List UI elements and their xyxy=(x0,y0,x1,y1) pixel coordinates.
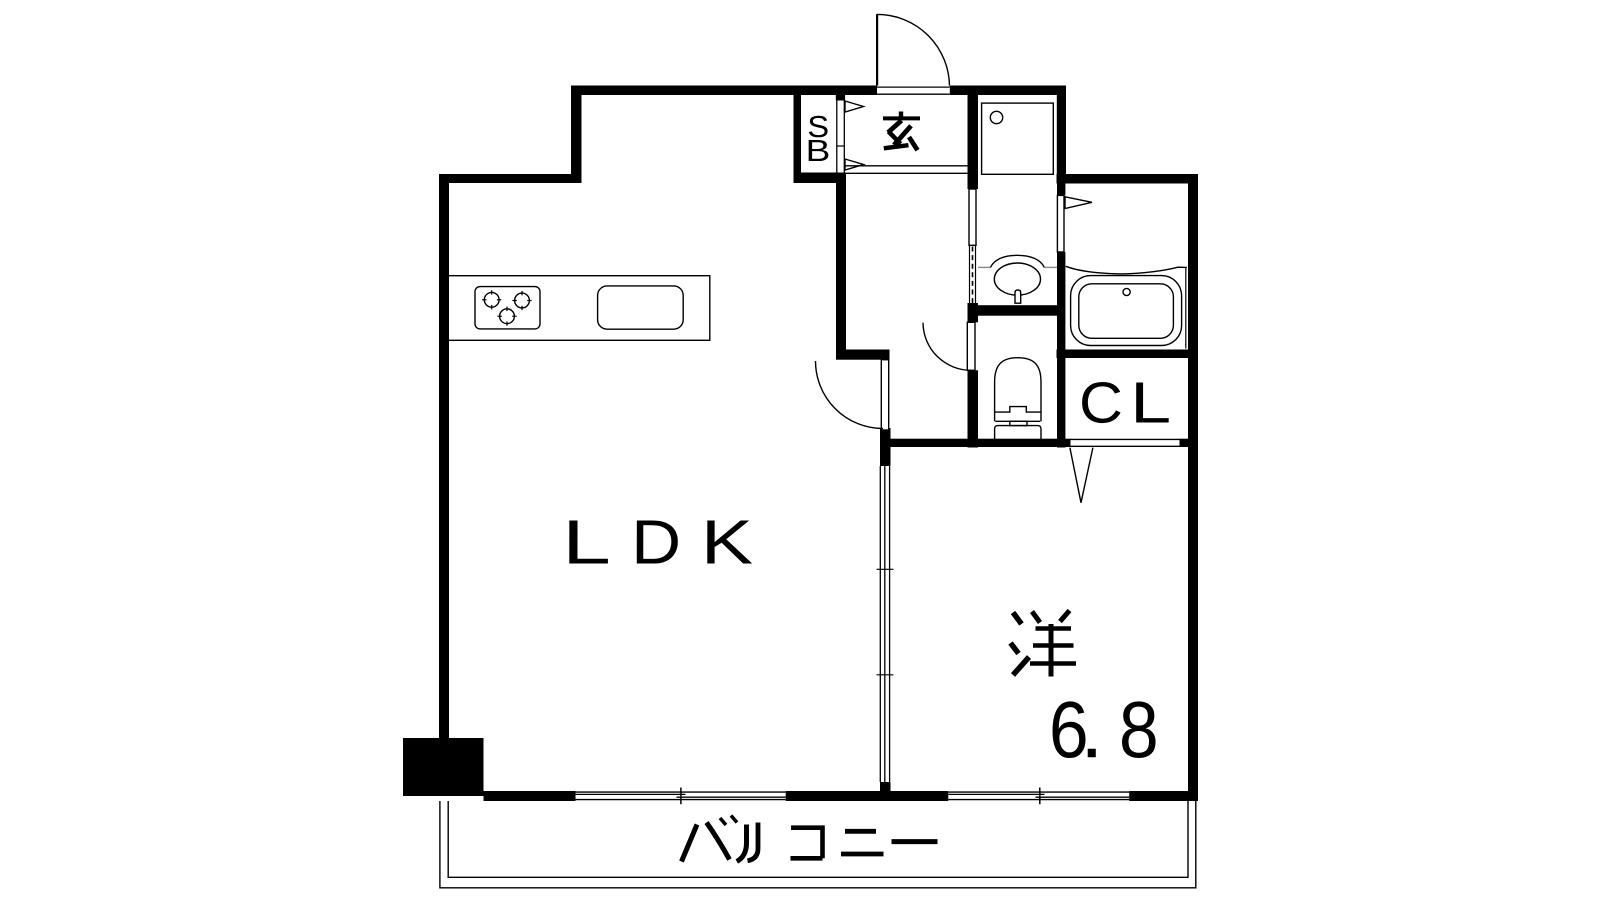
svg-text:B: B xyxy=(806,133,831,167)
svg-text:L: L xyxy=(1130,371,1171,436)
svg-text:L: L xyxy=(562,508,611,578)
svg-text:8: 8 xyxy=(1119,685,1159,774)
svg-text:C: C xyxy=(1079,371,1123,436)
svg-text:D: D xyxy=(631,508,681,578)
svg-text:.: . xyxy=(1080,685,1104,774)
svg-text:K: K xyxy=(701,508,753,578)
